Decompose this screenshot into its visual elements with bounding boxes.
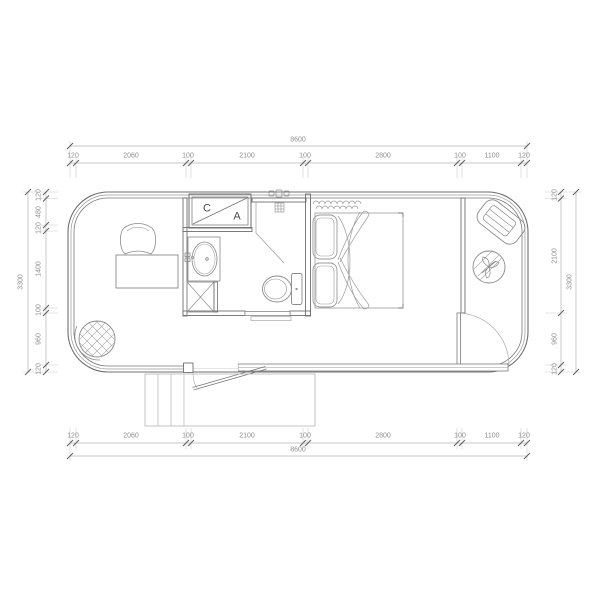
drain-dot xyxy=(206,258,209,261)
door-hinge xyxy=(184,363,194,373)
lounge-chair xyxy=(72,318,122,365)
floor-plan-canvas: 8600 120 2060 100 2100 100 2800 100 1100… xyxy=(0,0,600,600)
dim-left-seg-2: 120 xyxy=(36,222,43,234)
dim-left-seg-1: 480 xyxy=(36,206,43,218)
pillow xyxy=(313,263,337,307)
door-swing-arc xyxy=(193,373,197,388)
dim-bottom-seg-7: 1100 xyxy=(484,433,499,440)
plant-table xyxy=(473,251,505,283)
dim-bottom-seg-8: 120 xyxy=(518,433,530,440)
cabinet-label-c: C xyxy=(203,204,211,215)
bed xyxy=(313,211,403,309)
dim-top-seg-5: 2800 xyxy=(375,153,391,160)
dim-right-seg-0: 120 xyxy=(552,189,559,201)
dim-top-seg-2: 100 xyxy=(182,153,194,160)
dim-left-seg-3: 1400 xyxy=(36,261,43,277)
dim-left-overall: 3300 xyxy=(18,274,25,290)
washbasin xyxy=(185,237,220,281)
dim-top-seg-4: 100 xyxy=(299,153,311,160)
dim-bottom-overall: 8600 xyxy=(290,447,306,454)
dim-bottom-seg-6: 100 xyxy=(454,433,466,440)
dim-bottom-seg-3: 2100 xyxy=(239,433,255,440)
partition-door xyxy=(457,313,509,365)
dim-left-seg-6: 120 xyxy=(36,363,43,375)
plant-icon xyxy=(482,257,499,278)
floor-plan-drawing xyxy=(0,0,600,600)
cabinet-ca xyxy=(189,194,251,228)
pillow xyxy=(313,215,337,259)
dim-top-seg-0: 120 xyxy=(67,153,79,160)
dim-bottom-seg-4: 100 xyxy=(299,433,311,440)
desk xyxy=(116,255,178,288)
floor-drain-icon xyxy=(275,203,284,212)
glass-partition xyxy=(256,202,284,263)
dim-right-seg-1: 2100 xyxy=(552,248,559,264)
dim-right-seg-3: 120 xyxy=(552,363,559,375)
desk-chair xyxy=(120,224,155,255)
partition-wall xyxy=(461,198,465,370)
shower-mixer-icon xyxy=(269,190,289,197)
dim-right-seg-2: 960 xyxy=(552,333,559,345)
dim-top-seg-7: 1100 xyxy=(484,153,499,160)
dim-bottom-seg-5: 2800 xyxy=(375,433,391,440)
window-strip xyxy=(238,364,508,371)
porch-deck xyxy=(145,374,315,426)
dim-left-seg-4: 100 xyxy=(36,304,43,316)
dim-top-seg-3: 2100 xyxy=(239,153,255,160)
dim-top-seg-1: 2060 xyxy=(123,153,139,160)
toilet xyxy=(263,274,303,305)
dim-top-overall: 8600 xyxy=(290,137,306,144)
curtain-band xyxy=(313,201,361,209)
dim-left-seg-5: 960 xyxy=(36,333,43,345)
dim-top-seg-6: 100 xyxy=(454,153,466,160)
mattress xyxy=(315,213,403,308)
dim-bottom-seg-0: 120 xyxy=(67,433,79,440)
dim-bottom-seg-1: 2060 xyxy=(123,433,139,440)
dim-bottom-seg-2: 100 xyxy=(182,433,194,440)
dim-left-seg-0: 120 xyxy=(36,189,43,201)
bathroom-sliding-door xyxy=(245,312,291,321)
dim-right-overall: 3300 xyxy=(567,274,574,290)
blanket xyxy=(338,211,369,309)
cabinet-label-a: A xyxy=(233,212,240,223)
dim-top-seg-8: 120 xyxy=(518,153,530,160)
